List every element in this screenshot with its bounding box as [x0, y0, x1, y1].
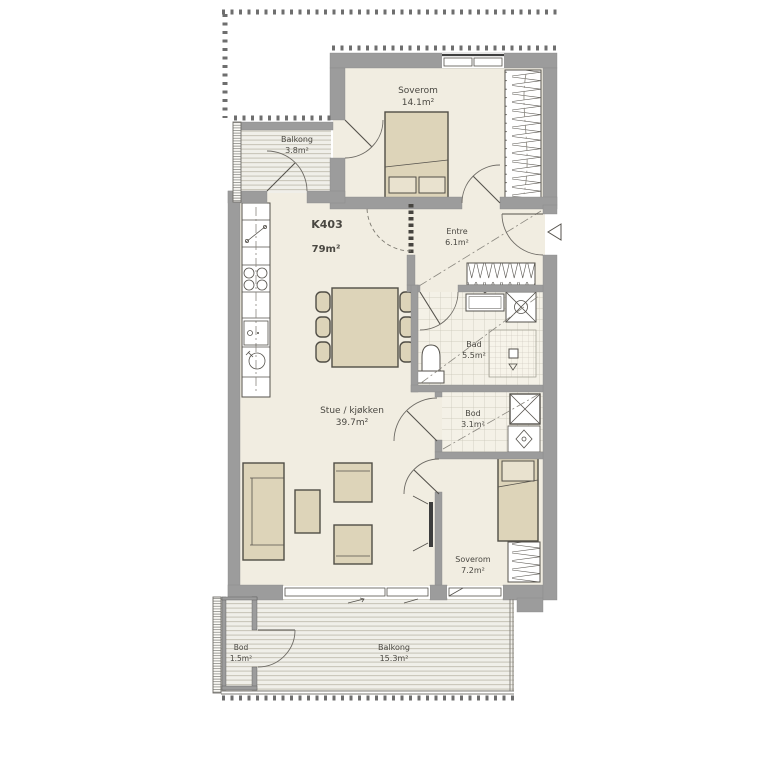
dining-table [332, 288, 398, 367]
balcony-top-structure [233, 122, 241, 202]
railing [213, 597, 221, 693]
floor-plan-drawing: Balkong 3.8m² Soverom 14.1m² K403 79m² E… [0, 0, 768, 768]
wardrobe-hatch [505, 70, 541, 198]
unit-id-label: K403 [311, 218, 343, 231]
entrance-arrow-icon [548, 224, 561, 240]
sofa [243, 463, 284, 560]
floor-plan-page: Balkong 3.8m² Soverom 14.1m² K403 79m² E… [0, 0, 768, 768]
railing [233, 122, 241, 202]
room-area-living: 39.7m² [336, 418, 369, 428]
ventilation-icon [508, 426, 540, 452]
room-area-storage: 3.1m² [461, 420, 485, 429]
room-label-bedroom-main: Soverom [398, 86, 438, 96]
dining-chair [316, 342, 330, 362]
bedroom-main-window [442, 53, 504, 68]
room-label-balcony-storage: Bod [234, 643, 249, 652]
wardrobe-hatch [508, 542, 540, 582]
tv-icon [429, 502, 433, 547]
room-area-balcony-top: 3.8m² [285, 146, 309, 155]
room-label-balcony-bottom: Balkong [378, 643, 410, 652]
room-label-living: Stue / kjøkken [320, 406, 384, 416]
unit-area-label: 79m² [312, 244, 341, 255]
kitchen-counter [242, 203, 270, 397]
washing-machine-icon [506, 292, 536, 322]
bedroom-second-window [447, 586, 503, 598]
shower-drain-icon [509, 349, 518, 358]
pillow [502, 461, 534, 481]
room-label-bath: Bad [466, 340, 481, 349]
room-label-storage: Bod [465, 409, 480, 418]
balcony-bottom-deck [221, 599, 514, 691]
pillow [389, 177, 416, 193]
dining-chair [316, 292, 330, 312]
tall-cabinet-icon [510, 394, 540, 424]
dining-chair [316, 317, 330, 337]
room-area-bedroom-second: 7.2m² [461, 566, 485, 575]
wardrobe-hatch [467, 263, 535, 285]
room-label-bedroom-second: Soverom [455, 555, 491, 564]
room-label-balcony-top: Balkong [281, 135, 313, 144]
room-area-entre: 6.1m² [445, 238, 469, 247]
armchair [334, 525, 372, 564]
room-area-balcony-bottom: 15.3m² [380, 654, 409, 663]
balcony-edge [221, 691, 514, 694]
room-label-entre: Entre [446, 227, 467, 236]
coffee-table [295, 490, 320, 533]
armchair [334, 463, 372, 502]
room-area-bedroom-main: 14.1m² [402, 98, 435, 108]
room-area-bath: 5.5m² [462, 351, 486, 360]
pillow [419, 177, 445, 193]
room-area-balcony-storage: 1.5m² [230, 654, 252, 663]
